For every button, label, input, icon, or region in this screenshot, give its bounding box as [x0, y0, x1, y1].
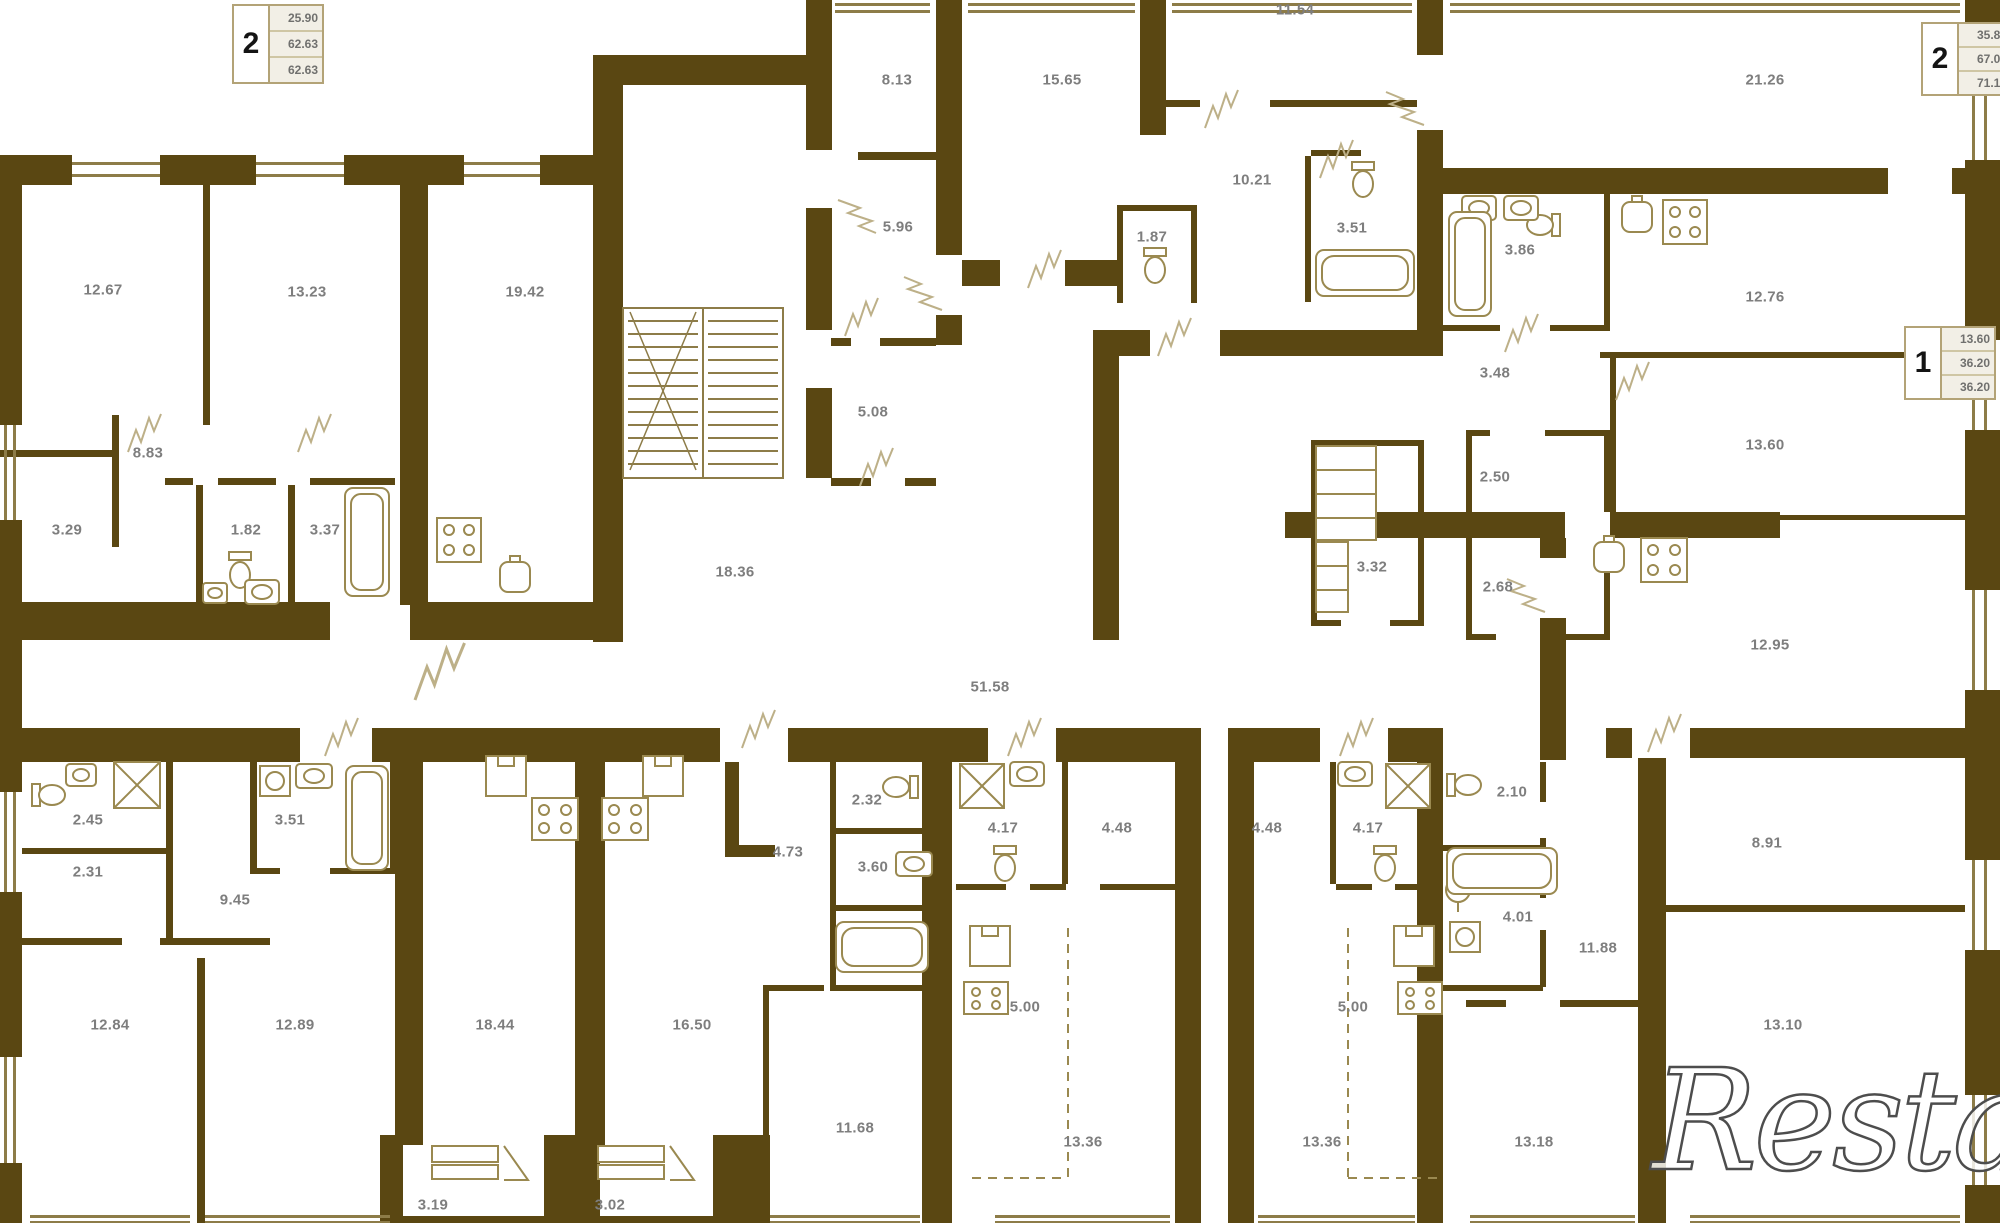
bathtub-icon — [345, 488, 389, 596]
room-area-label: 51.58 — [970, 679, 1009, 696]
unit-room-count: 2 — [234, 6, 270, 82]
room-area-label: 9.45 — [220, 892, 250, 909]
room-area-label: 11.68 — [836, 1120, 874, 1137]
room-area-label: 3.60 — [858, 859, 888, 876]
room-area-label: 2.50 — [1480, 469, 1510, 486]
bathtub-icon — [836, 922, 928, 972]
room-area-label: 2.32 — [852, 792, 882, 809]
unit-area-value: 35.80 — [1959, 24, 2000, 48]
room-area-label: 4.17 — [1353, 820, 1383, 837]
bathtub-icon — [1447, 848, 1557, 894]
bathtub-icon — [1449, 212, 1491, 316]
room-area-label: 13.10 — [1763, 1017, 1802, 1034]
room-area-label: 3.32 — [1357, 559, 1387, 576]
room-area-label: 3.51 — [1337, 220, 1367, 237]
room-area-label: 3.48 — [1480, 365, 1510, 382]
room-area-label: 13.60 — [1745, 437, 1784, 454]
room-area-label: 4.01 — [1503, 909, 1533, 926]
toilet-icon — [883, 776, 918, 798]
unit-area-value: 62.63 — [270, 58, 322, 82]
room-area-label: 3.02 — [595, 1197, 625, 1214]
cabinet-icon — [1394, 926, 1434, 966]
room-area-label: 19.42 — [505, 284, 544, 301]
toilet-icon — [1374, 846, 1396, 881]
shower-icon — [114, 762, 160, 808]
shower-icon — [1386, 764, 1430, 808]
room-area-label: 11.54 — [1276, 2, 1314, 19]
room-area-label: 8.83 — [133, 445, 163, 462]
sink-icon — [1504, 196, 1538, 220]
floorplan-drawing — [0, 0, 2000, 1223]
sink-icon — [66, 764, 96, 786]
room-area-label: 2.45 — [73, 812, 103, 829]
room-area-label: 12.95 — [1750, 637, 1789, 654]
washing-machine-icon — [260, 766, 290, 796]
room-area-label: 18.36 — [715, 564, 754, 581]
room-area-label: 1.82 — [231, 522, 261, 539]
unit-summary-box: 2 35.80 67.04 71.15 — [1921, 22, 2000, 96]
kitchen-sink-icon — [500, 556, 530, 592]
sink-icon — [1338, 762, 1372, 786]
room-area-label: 4.17 — [988, 820, 1018, 837]
room-area-label: 12.67 — [83, 282, 122, 299]
room-area-label: 16.50 — [672, 1017, 711, 1034]
bathtub-icon — [1316, 250, 1414, 296]
toilet-icon — [1447, 774, 1481, 796]
sink-icon — [1010, 762, 1044, 786]
room-area-label: 5.00 — [1010, 999, 1040, 1016]
washing-machine-icon — [1450, 922, 1480, 952]
room-area-label: 15.65 — [1042, 72, 1081, 89]
sink-icon — [203, 583, 227, 603]
unit-area-value: 36.20 — [1942, 376, 1994, 398]
unit-room-count: 1 — [1906, 328, 1942, 398]
shower-icon — [960, 764, 1004, 808]
balcony-window-icon — [598, 1146, 694, 1180]
wardrobe-icon — [1316, 446, 1376, 612]
room-area-label: 13.36 — [1063, 1134, 1102, 1151]
unit-area-value: 25.90 — [270, 6, 322, 32]
unit-summary-box: 1 13.60 36.20 36.20 — [1904, 326, 1996, 400]
toilet-icon — [994, 846, 1016, 881]
unit-area-value: 36.20 — [1942, 352, 1994, 376]
kitchen-niche-dashed — [972, 928, 1438, 1178]
toilet-icon — [32, 784, 65, 806]
sink-icon — [896, 852, 932, 876]
room-area-label: 3.19 — [418, 1197, 448, 1214]
toilet-icon — [1144, 248, 1166, 283]
room-area-label: 2.10 — [1497, 784, 1527, 801]
sink-icon — [296, 764, 332, 788]
unit-area-value: 71.15 — [1959, 72, 2000, 94]
unit-area-value: 62.63 — [270, 32, 322, 58]
room-area-label: 1.87 — [1137, 229, 1167, 246]
room-area-label: 12.84 — [90, 1017, 129, 1034]
cabinet-icon — [486, 756, 526, 796]
stove-icon — [437, 518, 481, 562]
room-area-label: 8.91 — [1752, 835, 1782, 852]
room-area-label: 3.29 — [52, 522, 82, 539]
kitchen-sink-icon — [1622, 196, 1652, 232]
room-area-label: 3.37 — [310, 522, 340, 539]
staircase-icon — [623, 308, 783, 478]
room-area-label: 10.21 — [1232, 172, 1271, 189]
unit-area-value: 67.04 — [1959, 48, 2000, 72]
unit-summary-box: 2 25.90 62.63 62.63 — [232, 4, 324, 84]
cabinet-icon — [970, 926, 1010, 966]
stove-icon — [1398, 982, 1442, 1014]
stove-icon — [1663, 200, 1707, 244]
room-area-label: 13.18 — [1514, 1134, 1553, 1151]
bathtub-icon — [346, 766, 388, 870]
cabinet-icon — [643, 756, 683, 796]
room-area-label: 13.23 — [287, 284, 326, 301]
balcony-window-icon — [432, 1146, 528, 1180]
toilet-icon — [1352, 162, 1374, 197]
room-area-label: 4.48 — [1252, 820, 1282, 837]
room-area-label: 12.76 — [1745, 289, 1784, 306]
room-area-label: 2.68 — [1483, 579, 1513, 596]
room-area-label: 4.73 — [773, 844, 803, 861]
room-area-label: 18.44 — [475, 1017, 514, 1034]
stove-icon — [964, 982, 1008, 1014]
floorplan-page: 8.1315.6511.5421.2612.6713.2319.425.961.… — [0, 0, 2000, 1223]
room-area-label: 3.86 — [1505, 242, 1535, 259]
room-area-label: 5.08 — [858, 404, 888, 421]
room-area-label: 11.88 — [1579, 940, 1617, 957]
stove-icon — [1641, 538, 1687, 582]
room-area-label: 8.13 — [882, 72, 912, 89]
room-area-label: 13.36 — [1302, 1134, 1341, 1151]
stove-icon — [532, 798, 578, 840]
stove-icon — [602, 798, 648, 840]
unit-room-count: 2 — [1923, 24, 1959, 94]
room-area-label: 21.26 — [1745, 72, 1784, 89]
room-area-label: 2.31 — [73, 864, 103, 881]
kitchen-sink-icon — [1594, 536, 1624, 572]
room-area-label: 5.96 — [883, 219, 913, 236]
room-area-label: 12.89 — [275, 1017, 314, 1034]
walls — [0, 0, 2000, 1223]
room-area-label: 4.48 — [1102, 820, 1132, 837]
sink-icon — [245, 580, 279, 604]
room-area-label: 3.51 — [275, 812, 305, 829]
unit-area-value: 13.60 — [1942, 328, 1994, 352]
room-area-label: 5.00 — [1338, 999, 1368, 1016]
